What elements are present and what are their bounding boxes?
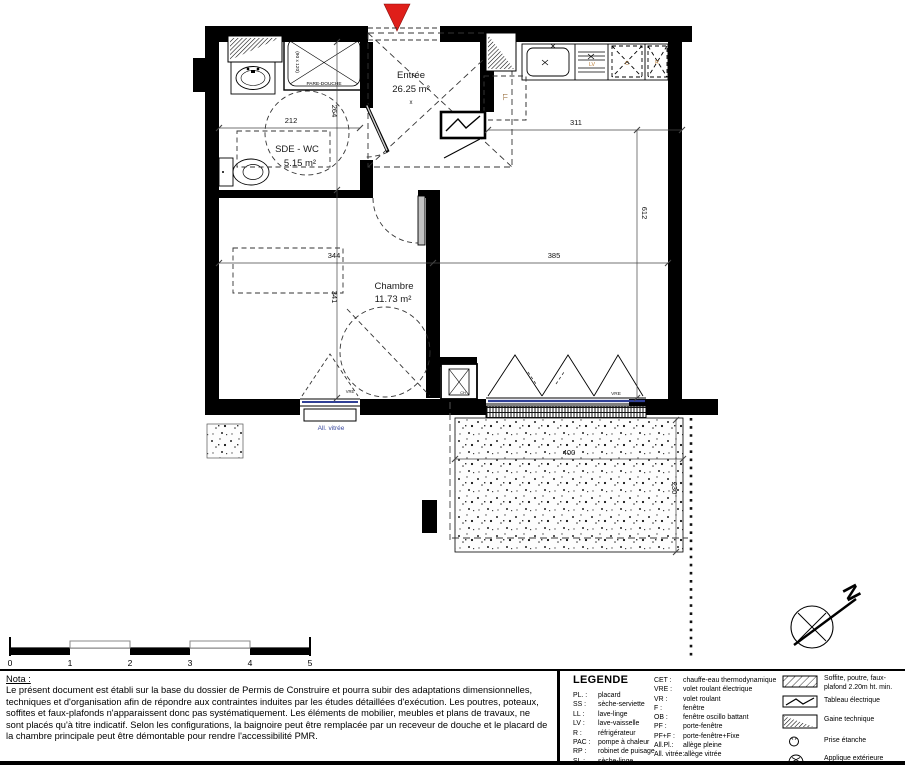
legend-row: VRE :volet roulant électrique: [654, 685, 776, 694]
legend-row: PF+F :porte-fenêtre+Fixe: [654, 732, 776, 741]
north-label: N: [837, 581, 864, 605]
legend-row: F :fenêtre: [654, 704, 776, 713]
water-heater-label: CH: [460, 391, 466, 395]
north-compass: [791, 599, 856, 648]
nota-title: Nota :: [6, 674, 549, 684]
electrical-panel-icon: [782, 695, 820, 711]
duct-box-bathroom: [228, 36, 282, 62]
dim-385: 385: [548, 251, 561, 260]
legend-symbol-row: Prise étanche: [782, 735, 905, 750]
dishwasher-label: LV: [589, 62, 595, 68]
legend-column-abbreviations: PL. :placard SS :sèche-serviette LL :lav…: [573, 691, 655, 761]
toilet: [219, 158, 269, 186]
dim-612: 612: [640, 207, 649, 220]
room-label-chambre: Chambre: [374, 281, 413, 292]
legend-row: RP :robinet de puisage: [573, 747, 655, 756]
duct-box-kitchen: [486, 33, 516, 71]
entrance-arrow: [384, 4, 410, 31]
room-area-entree: 26.25 m²: [392, 84, 430, 95]
dim-230: 230: [670, 482, 679, 495]
legend-title: LEGENDE: [573, 674, 628, 686]
technical-duct-icon: [782, 714, 820, 732]
sealed-socket-icon: [782, 735, 820, 750]
scale-tick-2: 2: [128, 658, 133, 667]
scale-tick-4: 4: [248, 658, 253, 667]
room-label-entree: Entrée: [397, 70, 425, 81]
legend-row: VR :volet roulant: [654, 695, 776, 704]
left-exterior-slab: [207, 424, 243, 458]
kitchen-counter: [522, 44, 668, 80]
fridge-label: R: [655, 60, 659, 66]
legend-column-symbols: Soffite, poutre, faux-plafond 2.20m ht. …: [782, 675, 905, 761]
entrance-threshold: [368, 28, 440, 40]
floor-plan: PARE-DOUCHE (90 x 120): [0, 0, 907, 667]
room-area-chambre: 11.73 m²: [375, 294, 412, 305]
dim-344: 344: [328, 251, 341, 260]
cooker-label: C: [625, 61, 629, 67]
legend-row: All. vitrée:allège vitrée: [654, 750, 776, 759]
room-label-sde: SDE - WC: [275, 144, 319, 155]
chambre-clearance: [233, 248, 430, 397]
washbasin: [231, 62, 275, 94]
shower-screen-label: PARE-DOUCHE: [306, 81, 341, 87]
dim-311: 311: [570, 118, 582, 127]
legend-row: SS :sèche-serviette: [573, 700, 655, 709]
legend-row: OB :fenêtre oscillo battant: [654, 713, 776, 722]
sde-door: [366, 104, 388, 157]
washer-label: LL: [501, 94, 507, 101]
legend-block: LEGENDE PL. :placard SS :sèche-serviette…: [559, 671, 905, 761]
outdoor-sconce-icon: [782, 753, 820, 761]
title-block: Nota : Le présent document est établi su…: [0, 669, 905, 765]
legend-row: All.Pl.:allège pleine: [654, 741, 776, 750]
scale-tick-0: 0: [8, 658, 13, 667]
dim-212: 212: [285, 116, 298, 125]
scale-tick-5: 5: [308, 658, 313, 667]
nota-body: Le présent document est établi sur la ba…: [6, 685, 549, 743]
legend-symbol-row: Soffite, poutre, faux-plafond 2.20m ht. …: [782, 675, 905, 692]
terrace-slab: [455, 418, 683, 552]
chambre-window: [300, 354, 360, 421]
sejour-window-vre: VRE: [611, 391, 621, 397]
chambre-window-vre: VRE: [346, 389, 355, 394]
legend-column-openings: CET :chauffe-eau thermodynamique VRE :vo…: [654, 676, 776, 760]
nota-block: Nota : Le présent document est établi su…: [0, 671, 559, 761]
electrical-panel-box: [441, 112, 485, 158]
chambre-door: [373, 196, 425, 245]
dim-264: 264: [330, 105, 339, 118]
water-heater-box: [441, 364, 477, 406]
sejour-window: [486, 355, 646, 419]
soffit-hatch-icon: [782, 675, 820, 691]
terrace-post: [422, 500, 437, 533]
legend-row: R :réfrigérateur: [573, 729, 655, 738]
legend-row: PAC :pompe à chaleur: [573, 738, 655, 747]
chambre-window-sill-label: All. vitrée: [318, 425, 345, 432]
clearance-x: x: [410, 100, 413, 106]
dim-400: 400: [563, 448, 576, 457]
legend-row: LV :lave-vaisselle: [573, 719, 655, 728]
scale-tick-3: 3: [188, 658, 193, 667]
legend-row: SL :sèche-linge: [573, 757, 655, 761]
legend-symbol-row: Gaine technique: [782, 714, 905, 732]
legend-row: CET :chauffe-eau thermodynamique: [654, 676, 776, 685]
legend-symbol-row: Tableau électrique: [782, 695, 905, 711]
kitchen-sink: [527, 48, 569, 76]
scale-bar: 0 1 2 3 4 5: [8, 637, 313, 667]
legend-row: PL. :placard: [573, 691, 655, 700]
dim-341: 341: [330, 291, 339, 304]
legend-row: LL :lave-linge: [573, 710, 655, 719]
shower-size-label: (90 x 120): [294, 51, 300, 73]
chambre-closet: [233, 248, 343, 293]
scale-tick-1: 1: [68, 658, 73, 667]
legend-symbol-row: Applique extérieure: [782, 753, 905, 761]
legend-row: PF :porte-fenêtre: [654, 722, 776, 731]
room-area-sde: 5.15 m²: [284, 158, 316, 169]
